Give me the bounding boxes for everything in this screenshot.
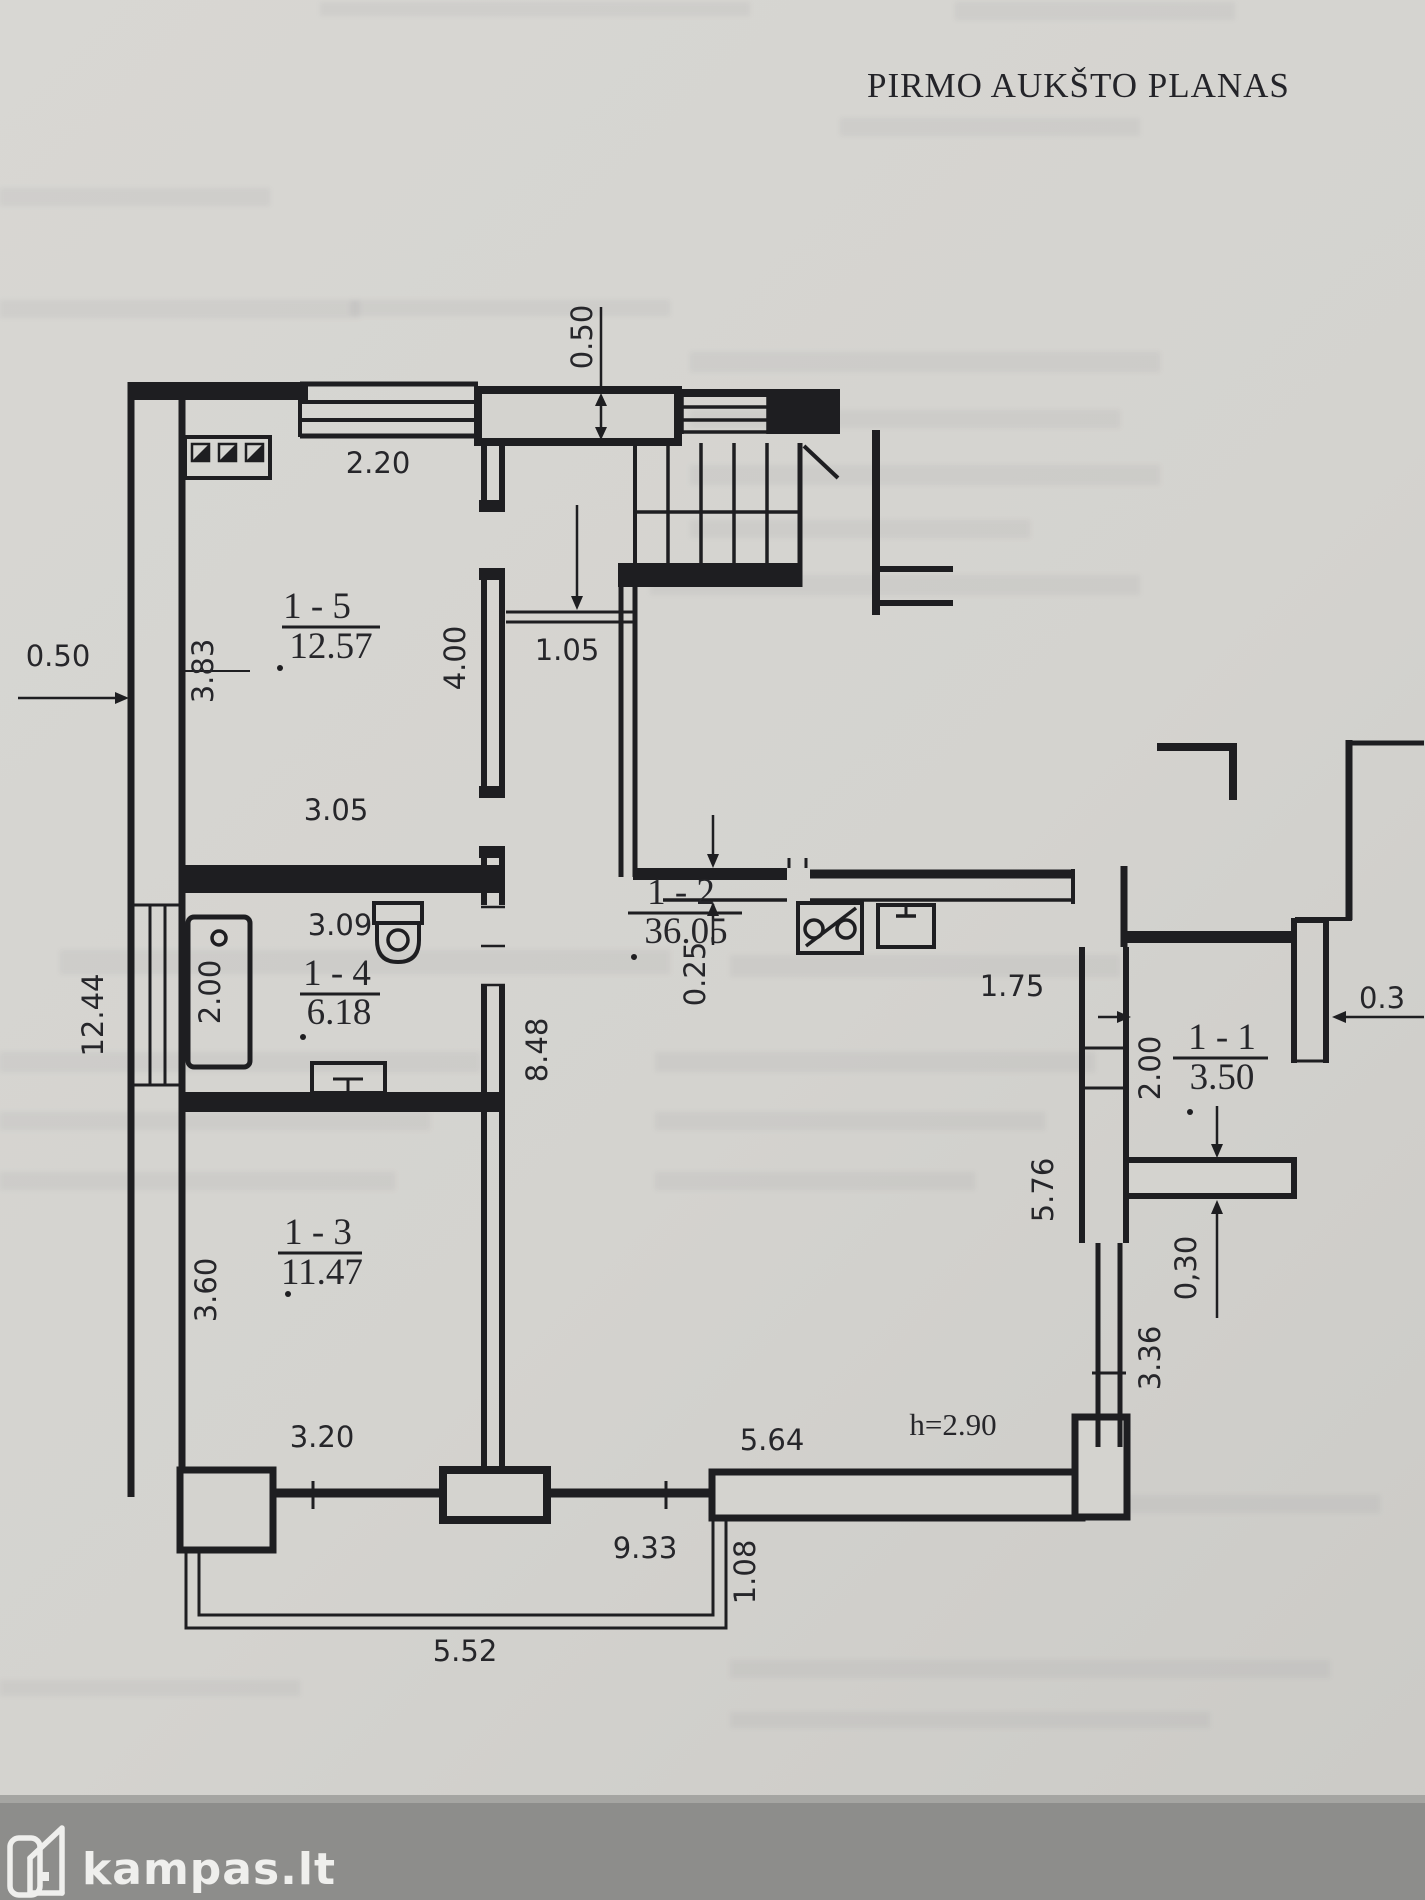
dim-east-wall-bottom: 0,30 (1169, 1236, 1203, 1301)
dimension-texts: 0.50 2.20 4.00 3.83 0.50 1.05 3.05 3.09 … (26, 305, 1405, 1668)
room-area: 6.18 (307, 992, 372, 1033)
kitchen-sink-icon (878, 905, 934, 947)
dim-south-right: 5.64 (740, 1423, 805, 1457)
dim-room11-depth: 2.00 (1133, 1036, 1167, 1101)
dim-east-wall-top: 0.3 (1359, 981, 1405, 1015)
room-id: 1 - 5 (283, 586, 351, 627)
room-id: 1 - 2 (647, 872, 715, 913)
masonry-stove-icon (185, 437, 270, 478)
room-id: 1 - 3 (284, 1212, 352, 1253)
dim-room13-west: 3.60 (189, 1258, 223, 1323)
dim-room13-width: 3.20 (290, 1420, 355, 1454)
room-area: 3.50 (1190, 1057, 1255, 1098)
dim-west-wall: 0.50 (26, 639, 91, 673)
scanned-floor-plan-photo: PIRMO AUKŠTO PLANAS (0, 0, 1425, 1900)
ceiling-height-note: h=2.90 (909, 1407, 996, 1442)
kitchen-stove-icon (798, 903, 862, 953)
dim-west-total: 12.44 (76, 973, 110, 1056)
room-area: 36.05 (644, 911, 727, 952)
room-id: 1 - 1 (1188, 1017, 1256, 1058)
dim-room11-width: 1.75 (980, 969, 1045, 1003)
room-label-1-3: 1 - 3 11.47 (278, 1212, 363, 1297)
room-id: 1 - 4 (303, 953, 371, 994)
watermark-text: kampas.lt (82, 1844, 336, 1895)
page-title: PIRMO AUKŠTO PLANAS (867, 66, 1290, 105)
dim-hall-depth: 8.48 (520, 1018, 554, 1083)
dim-room15-depth: 4.00 (438, 626, 472, 691)
room-label-1-1: 1 - 1 3.50 (1173, 1017, 1268, 1115)
room-label-1-5: 1 - 5 12.57 (277, 586, 380, 671)
room-area: 11.47 (281, 1252, 363, 1293)
dim-stair-door: 1.05 (535, 633, 600, 667)
dim-room14-width: 3.09 (308, 908, 373, 942)
dim-east-upper: 5.76 (1026, 1158, 1060, 1223)
dim-bathtub: 2.00 (193, 960, 227, 1025)
dim-porch-south: 5.52 (433, 1634, 498, 1668)
room-label-1-4: 1 - 4 6.18 (300, 953, 380, 1040)
dim-top-offset: 0.50 (565, 305, 599, 370)
room-area: 12.57 (289, 626, 372, 667)
window-top-room15 (300, 382, 478, 437)
dim-south-center: 9.33 (613, 1531, 678, 1565)
dim-window-220: 2.20 (346, 446, 411, 480)
room-labels: 1 - 5 12.57 1 - 4 6.18 1 - 3 11.47 1 - 2… (277, 586, 1268, 1297)
dim-east-lower: 3.36 (1133, 1326, 1167, 1391)
dim-porch-east: 1.08 (728, 1540, 762, 1605)
room-label-1-2: 1 - 2 36.05 (628, 872, 742, 960)
dim-room15-width: 3.05 (304, 793, 369, 827)
dim-room15-west: 3.83 (186, 639, 220, 704)
